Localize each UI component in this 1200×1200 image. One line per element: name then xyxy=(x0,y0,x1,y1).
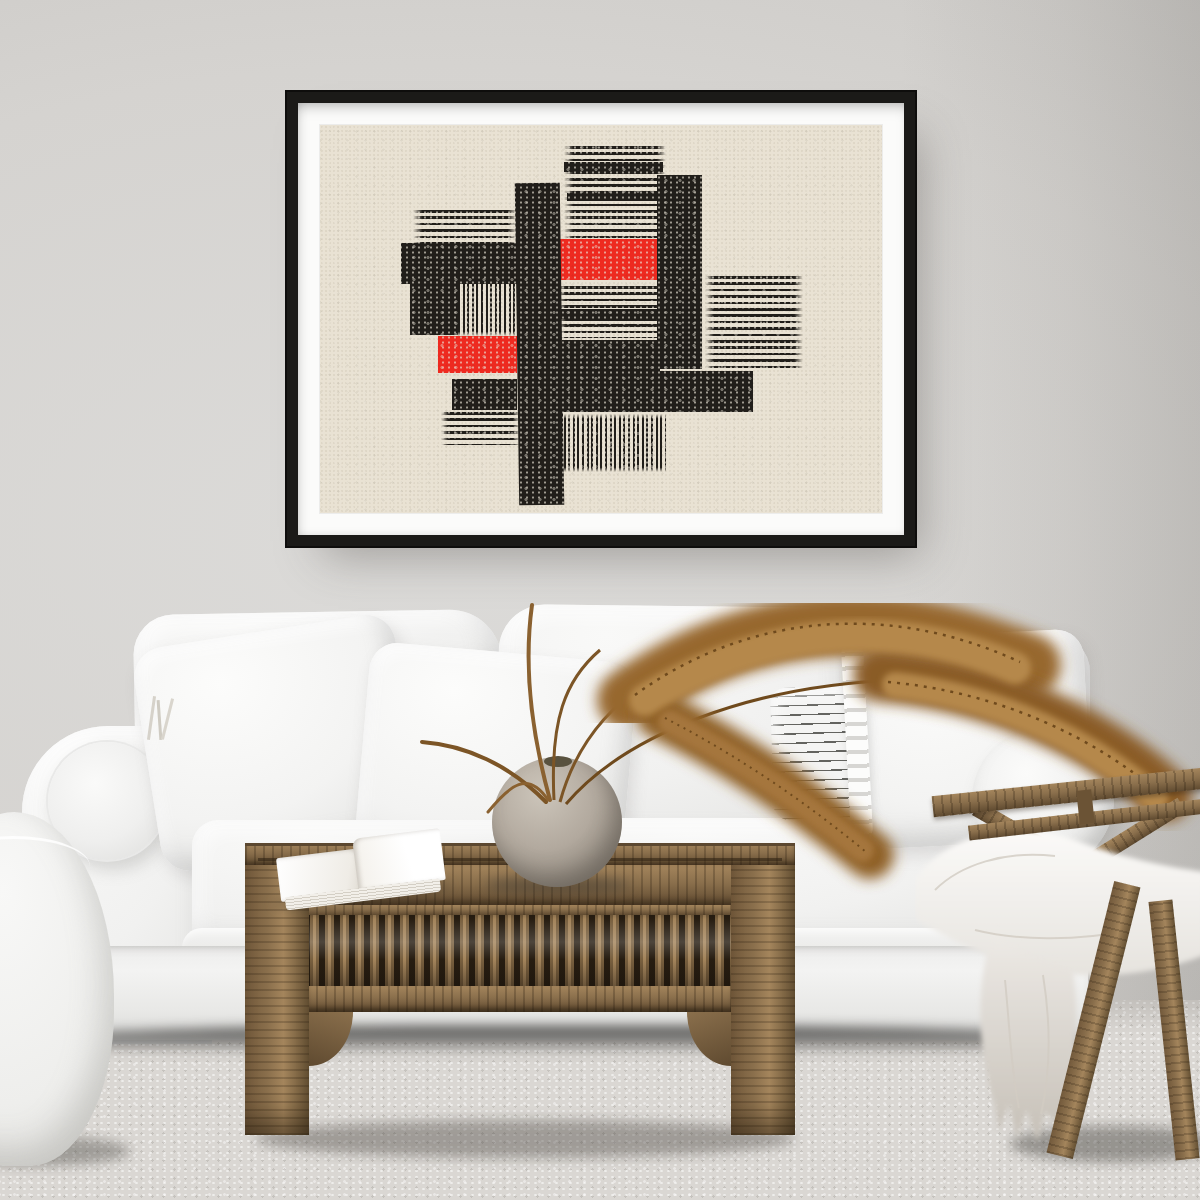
art-shape-bar-right xyxy=(657,175,702,369)
art-shape-band-top-2 xyxy=(567,193,663,202)
art-shape-rect-left-small xyxy=(410,284,458,334)
art-shape-bar-wide xyxy=(550,371,752,412)
art-shape-rect-left-big xyxy=(401,243,516,284)
living-room-scene xyxy=(0,0,1200,1200)
art-shape-band-top-1 xyxy=(564,162,662,172)
art-shape-rect-center xyxy=(562,340,660,371)
art-shape-stripes-left-bottom xyxy=(441,412,520,445)
art-shape-stripes-left xyxy=(413,210,517,243)
art-shape-band-center xyxy=(556,309,663,318)
art-shape-stripes-left-vertical xyxy=(458,280,517,336)
artwork-canvas xyxy=(320,125,882,513)
frame-mat xyxy=(298,103,904,535)
art-shape-red-center xyxy=(559,239,663,280)
table-bottom-rail xyxy=(307,986,733,1012)
art-shape-bar-tall xyxy=(514,183,563,506)
art-shape-rect-left-bottom xyxy=(452,379,517,410)
artwork-paper xyxy=(320,125,882,513)
art-shape-stripes-right xyxy=(705,276,803,369)
table-shadow xyxy=(255,1120,795,1158)
art-shape-stripes-bottom-vertical xyxy=(559,414,666,472)
picture-frame xyxy=(285,90,917,548)
art-shape-red-left xyxy=(438,336,517,373)
